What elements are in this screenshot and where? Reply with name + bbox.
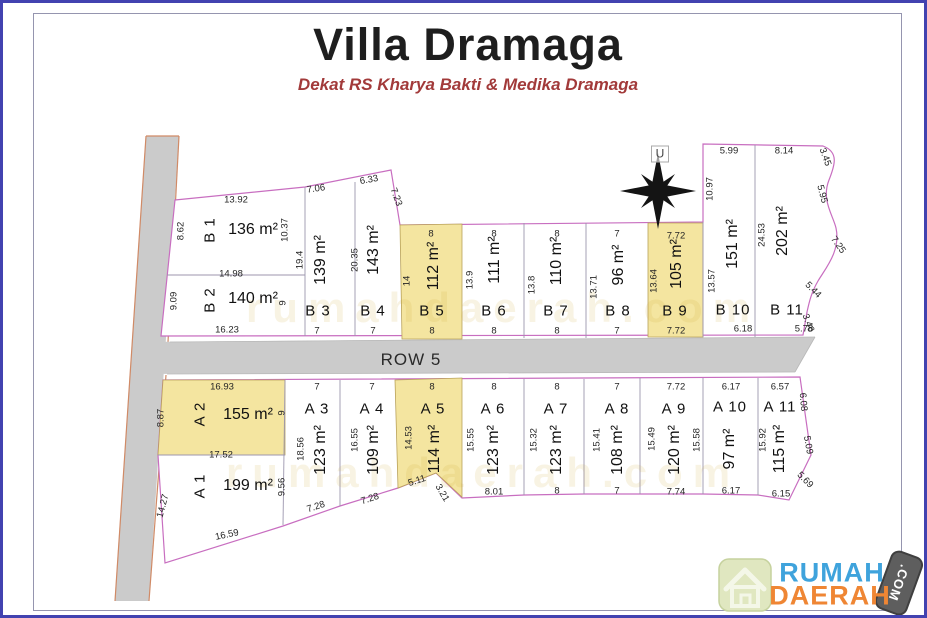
lot-area-label: 155 m²: [223, 406, 273, 424]
page-subtitle: Dekat RS Kharya Bakti & Medika Dramaga: [298, 75, 638, 95]
lot-dim-bottom: 7: [614, 486, 619, 497]
lot-dim-left: 16.55: [350, 428, 361, 452]
lot-area-label: 105 m²: [668, 239, 686, 289]
lot-dim-left: 24.53: [757, 223, 768, 247]
lot-area-label: 123 m²: [548, 425, 566, 475]
lot-dim-bottom: 7: [614, 326, 619, 337]
lot-dim-left: 15.41: [592, 428, 603, 452]
lot-dim-bottom: 7.72: [667, 326, 686, 337]
lot-area-label: 111 m²: [486, 236, 504, 283]
lot-id-label: B 5: [419, 303, 445, 320]
lot-dim-left: 8.62: [176, 222, 187, 241]
lot-dim-bottom: 7: [314, 326, 319, 337]
lot-id-label: A 8: [605, 401, 630, 418]
lot-dim-bottom: 6.15: [772, 489, 791, 500]
lot-dim-bottom: 17.52: [209, 450, 233, 461]
lot-id-label: A 6: [481, 401, 506, 418]
lot-dim-right: 15.58: [692, 428, 703, 452]
lot-dim-left: 15.92: [758, 428, 769, 452]
lot-dim-top: 8: [554, 382, 559, 393]
lot-dim-bottom: 8.01: [485, 487, 504, 498]
lot-dim-top: 8: [554, 229, 559, 240]
lot-dim-top: 8.14: [775, 146, 794, 157]
lot-dim-left: 15.49: [647, 427, 658, 451]
lot-area-label: 123 m²: [312, 425, 330, 475]
lot-dim-bottom: 6.17: [722, 486, 741, 497]
lot-dim-top: 8: [491, 229, 496, 240]
lot-area-label: 151 m²: [724, 219, 742, 269]
lot-dim-left: 20.35: [350, 248, 361, 272]
compass-north-label: U: [651, 146, 669, 163]
lot-area-label: 202 m²: [774, 206, 792, 256]
lot-dim-bottom: 6.18: [734, 324, 753, 335]
lot-id-label: A 5: [421, 401, 446, 418]
lot-area-label: 115 m²: [771, 425, 789, 474]
lot-dim-right: 6.08: [797, 392, 810, 411]
lot-dim-top: 8: [428, 229, 433, 240]
lot-dim-left-upper: 10.97: [705, 177, 716, 201]
lot-dim-bottom: 7.74: [667, 487, 686, 498]
lot-dim-top: 7: [614, 382, 619, 393]
lot-dim-left: 13.71: [589, 275, 600, 299]
lot-dim-top: 6.57: [771, 382, 790, 393]
lot-id-label: A 9: [662, 401, 687, 418]
lot-dim-left: 14: [402, 276, 413, 287]
lot-id-label: B 7: [543, 303, 569, 320]
lot-id-label: B 1: [202, 217, 219, 243]
lot-area-label: 139 m²: [312, 235, 330, 285]
row5-road-label: ROW 5: [381, 350, 442, 370]
lot-area-label: 110 m²: [548, 237, 566, 286]
lot-dim-left: 13.64: [649, 269, 660, 293]
logo-house-icon: [719, 559, 771, 611]
lot-id-label: A 11: [764, 399, 797, 416]
lot-dim-right: 9: [277, 410, 288, 415]
page-title: Villa Dramaga: [313, 19, 623, 71]
lot-dim-right: 10.37: [280, 218, 291, 242]
lot-dim-top: 13.92: [224, 195, 248, 206]
lot-id-label: A 3: [305, 401, 330, 418]
lot-area-label: 199 m²: [223, 477, 273, 495]
lot-dim-left: 15.55: [466, 428, 477, 452]
lot-dim-right: 9.56: [277, 478, 288, 497]
lot-dim-left: 15.32: [529, 428, 540, 452]
lot-dim-right: 9: [278, 300, 289, 305]
lot-dim-left: 8.87: [156, 409, 167, 428]
lot-id-label: B 6: [481, 303, 507, 320]
lot-area-label: 96 m²: [610, 245, 628, 286]
lot-dim-top: 16.93: [210, 382, 234, 393]
lot-id-label: B 9: [662, 303, 688, 320]
lot-dim-bottom: 7: [370, 326, 375, 337]
lot-dim-left: 19.4: [295, 251, 306, 270]
lot-dim-bottom: 8: [554, 486, 559, 497]
lot-dim-top: 7: [614, 229, 619, 240]
lot-area-label: 109 m²: [365, 425, 383, 475]
lot-id-label: B 8: [605, 303, 631, 320]
lot-dim-top: 7: [314, 382, 319, 393]
lot-dim-top: 5.99: [720, 146, 739, 157]
lot-dim-bottom: 8: [554, 326, 559, 337]
lot-dim-top: 7.72: [667, 231, 686, 242]
lot-area-label: 136 m²: [228, 221, 278, 239]
lot-dim-top: 6.17: [722, 382, 741, 393]
lot-area-label: 112 m²: [425, 242, 443, 291]
lot-area-label: 140 m²: [228, 290, 278, 308]
lot-dim-bottom: 8: [491, 326, 496, 337]
lot-id-label: B 4: [360, 303, 386, 320]
lot-id-label: A 10: [713, 399, 747, 416]
lot-dim-left: 9.09: [169, 292, 180, 311]
lot-id-label: A 1: [192, 474, 209, 499]
lot-area-label: 143 m²: [365, 225, 383, 275]
lot-area-label: 123 m²: [485, 425, 503, 475]
lot-dim-bottom: 8: [429, 326, 434, 337]
compass-icon: [620, 153, 696, 229]
lot-dim-top: 7: [369, 382, 374, 393]
lot-dim-left: 13.8: [527, 276, 538, 295]
lot-area-label: 120 m²: [666, 425, 684, 475]
site-plan-page: .COM rumahdaerah.com rumahdaerah.com Vil…: [0, 0, 927, 618]
lot-dim-left: 14.53: [404, 426, 415, 450]
lot-area-label: 97 m²: [721, 429, 739, 470]
lot-dim-top: 8: [429, 382, 434, 393]
lot-area-label: 114 m²: [426, 425, 444, 474]
lot-id-label: B 10: [716, 302, 751, 319]
lot-dim-bottom: 16.23: [215, 325, 239, 336]
lot-dim-top: 8: [491, 382, 496, 393]
lot-id-label: A 7: [544, 401, 569, 418]
lot-dim-left: 13.9: [465, 271, 476, 290]
lot-dim-left: 18.56: [296, 437, 307, 461]
lot-id-label: B 3: [305, 303, 331, 320]
lot-id-label: A 2: [192, 402, 209, 427]
lot-dim-left: 13.57: [707, 269, 718, 293]
row5-road: [131, 337, 815, 374]
lot-id-label: B 2: [202, 287, 219, 313]
lot-id-label: A 4: [360, 401, 385, 418]
logo-daerah-text: DAERAH: [769, 581, 891, 612]
lot-area-label: 108 m²: [609, 425, 627, 475]
lot-dim-top: 14.98: [219, 269, 243, 280]
lot-dim-top: 7.72: [667, 382, 686, 393]
